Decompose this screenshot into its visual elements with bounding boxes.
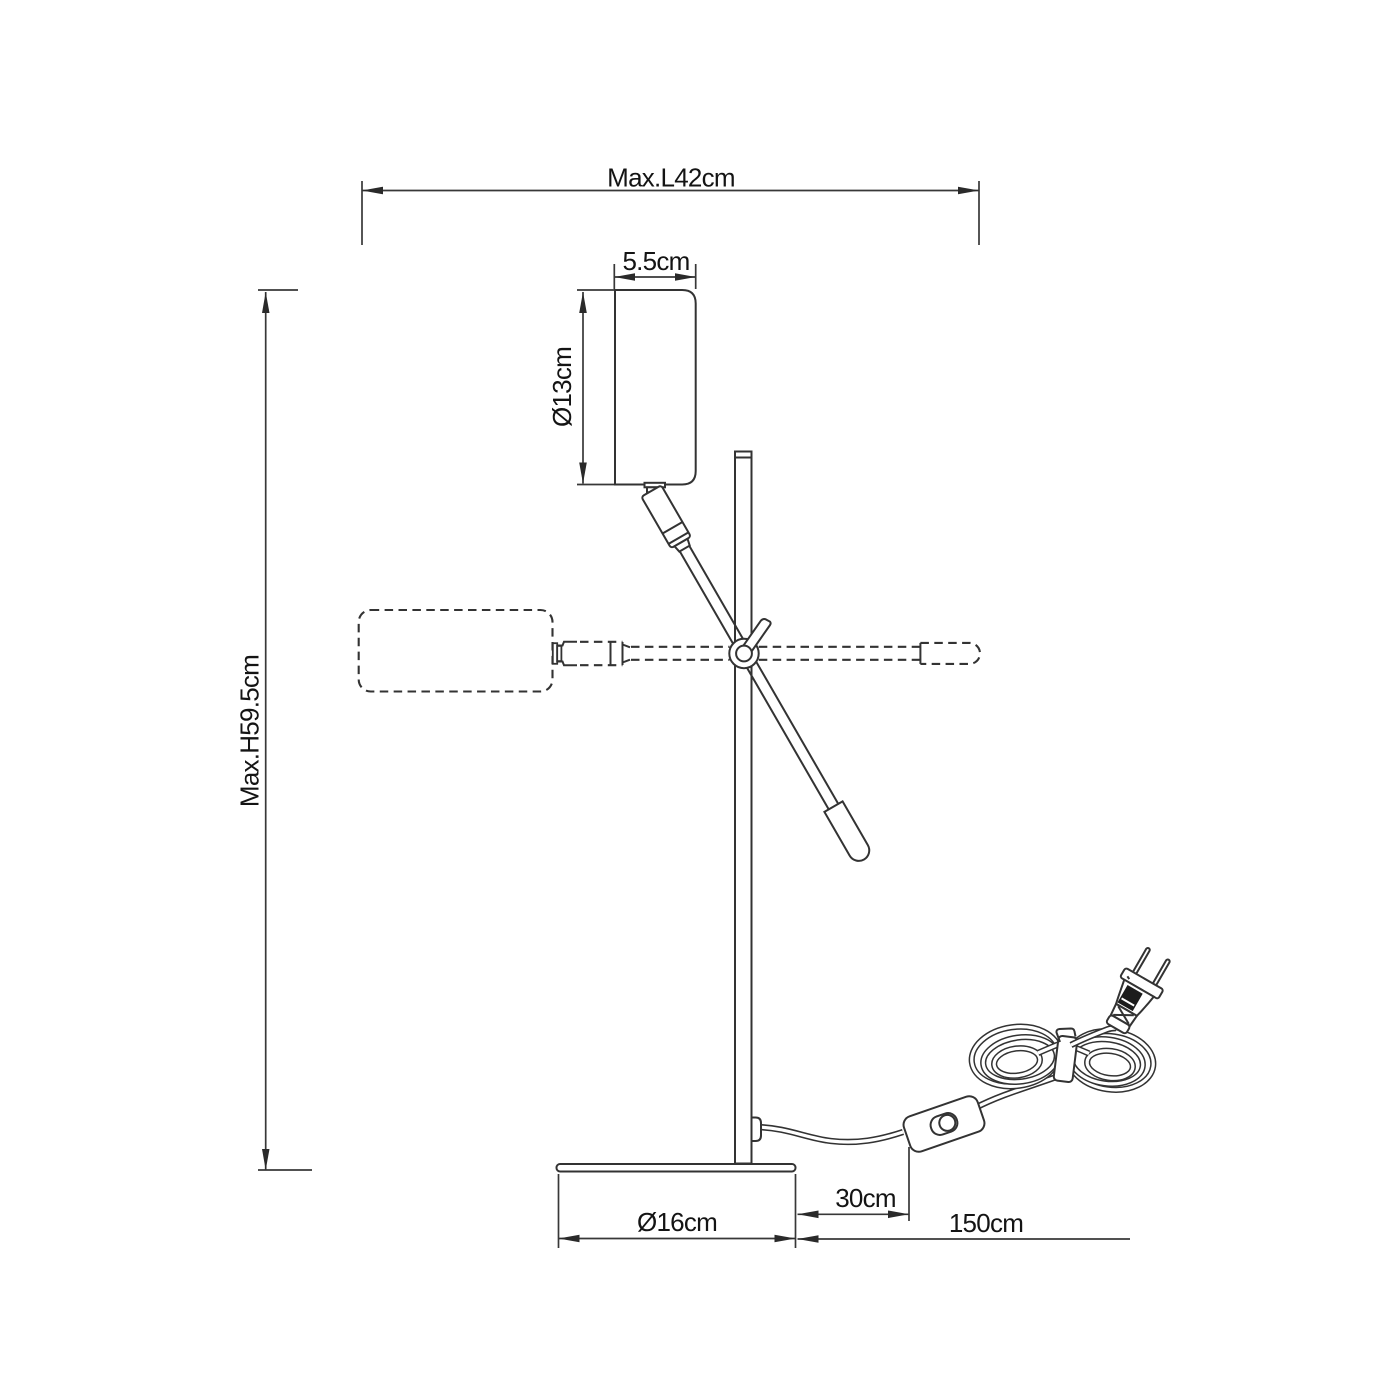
svg-text:Ø13cm: Ø13cm [547,347,577,427]
svg-text:30cm: 30cm [835,1183,896,1213]
svg-text:5.5cm: 5.5cm [622,246,689,276]
svg-text:Max.L42cm: Max.L42cm [607,163,735,193]
svg-text:Max.H59.5cm: Max.H59.5cm [235,655,265,807]
svg-text:Ø16cm: Ø16cm [637,1207,717,1237]
svg-text:150cm: 150cm [949,1208,1023,1238]
